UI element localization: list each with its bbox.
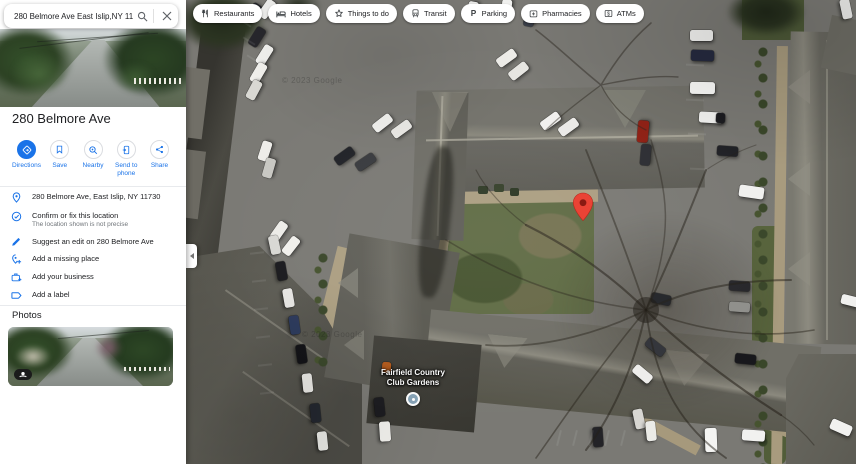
- directions-button[interactable]: Directions: [10, 140, 43, 177]
- satellite-map[interactable]: © 2023 Google © 2023 Google Fairfield Co…: [186, 0, 856, 464]
- chevron-left-icon: [190, 253, 194, 259]
- business-icon: [0, 272, 32, 283]
- send-to-phone-icon: [117, 140, 136, 159]
- chip-things-to-do-label: Things to do: [348, 9, 389, 18]
- restaurant-icon: [201, 9, 210, 18]
- chip-things-to-do[interactable]: Things to do: [326, 4, 397, 23]
- chip-atms-label: ATMs: [617, 9, 636, 18]
- nearby-label: Nearby: [83, 162, 104, 170]
- send-to-phone-label: Send to phone: [110, 162, 143, 177]
- share-label: Share: [151, 162, 168, 170]
- parked-car: [354, 152, 377, 172]
- parking-icon: P: [469, 9, 478, 18]
- sv-fence-right: [134, 78, 182, 83]
- add-business-row[interactable]: Add your business: [0, 272, 186, 283]
- sidebar-collapse-button[interactable]: [186, 244, 197, 268]
- add-label-row[interactable]: Add a label: [0, 290, 186, 301]
- chip-restaurants-label: Restaurants: [214, 9, 254, 18]
- building-top-right-corner: [821, 15, 856, 75]
- send-to-phone-button[interactable]: Send to phone: [110, 140, 143, 177]
- attractions-icon: [334, 9, 344, 19]
- thumb-tree-center: [94, 334, 124, 361]
- thumb-house-left: [15, 345, 51, 369]
- transit-icon: [411, 9, 420, 18]
- map-pin-icon[interactable]: [572, 192, 594, 222]
- chip-restaurants[interactable]: Restaurants: [193, 4, 262, 23]
- ridge-right: [826, 40, 828, 340]
- label-icon: [0, 290, 32, 301]
- photos-heading: Photos: [12, 310, 42, 321]
- chip-transit[interactable]: Transit: [403, 4, 455, 23]
- address-text: 280 Belmore Ave, East Islip, NY 11730: [32, 192, 160, 201]
- parked-car: [390, 119, 413, 139]
- add-missing-place-text: Add a missing place: [32, 254, 99, 263]
- action-bar: Directions Save Nearby Send to phone: [10, 140, 176, 177]
- search-input[interactable]: 280 Belmore Ave East Islip,NY 11730: [4, 12, 133, 21]
- share-icon: [150, 140, 169, 159]
- poi-label[interactable]: Fairfield Country Club Gardens: [358, 368, 468, 388]
- add-missing-place-row[interactable]: Add a missing place: [0, 254, 186, 265]
- chip-pharmacies[interactable]: Pharmacies: [521, 4, 590, 23]
- pencil-icon: [0, 237, 32, 247]
- chip-transit-label: Transit: [424, 9, 447, 18]
- directions-label: Directions: [12, 162, 41, 170]
- hedge-left-walkway: [314, 250, 330, 370]
- bin-1: [478, 186, 488, 194]
- parked-car: [716, 113, 726, 123]
- directions-icon: [17, 140, 36, 159]
- divider-1: [0, 186, 186, 187]
- add-place-icon: [0, 254, 32, 265]
- parked-car: [705, 428, 718, 452]
- parked-car: [275, 261, 288, 281]
- add-business-text: Add your business: [32, 272, 94, 281]
- photos-thumbnail[interactable]: [8, 327, 173, 386]
- save-label: Save: [52, 162, 67, 170]
- parked-car: [691, 50, 714, 62]
- chip-hotels-label: Hotels: [290, 9, 311, 18]
- confirm-location-icon: [0, 211, 32, 222]
- header-streetview-photo[interactable]: [0, 29, 186, 107]
- confirm-location-row[interactable]: Confirm or fix this location The locatio…: [0, 211, 186, 228]
- parking-stripe: [686, 64, 704, 67]
- parked-car: [690, 30, 713, 41]
- place-panel: 280 Belmore Ave East Islip,NY 11730 280 …: [0, 0, 186, 464]
- parked-car: [640, 144, 652, 166]
- sv-tree-left-2: [11, 52, 67, 95]
- parking-stripe: [556, 430, 562, 446]
- atm-icon: $: [604, 9, 613, 18]
- parked-car: [379, 421, 391, 442]
- parked-car: [637, 120, 650, 143]
- parked-car: [742, 429, 766, 442]
- hotel-icon: [276, 9, 286, 19]
- map-watermark-2: © 2023 Google: [302, 330, 362, 339]
- parked-car: [310, 403, 322, 423]
- poi-label-line2: Club Gardens: [358, 378, 468, 388]
- parked-car: [690, 82, 715, 94]
- pharmacy-icon: [529, 9, 538, 18]
- google-maps-app: © 2023 Google © 2023 Google Fairfield Co…: [0, 0, 856, 464]
- poi-label-line1: Fairfield Country: [358, 368, 468, 378]
- parked-car: [495, 48, 518, 68]
- parked-car: [507, 61, 530, 82]
- parked-car: [374, 397, 386, 417]
- parked-car: [729, 301, 751, 312]
- parked-car: [302, 373, 314, 393]
- svg-text:P: P: [470, 9, 476, 18]
- parked-car: [333, 146, 356, 166]
- search-icon[interactable]: [133, 11, 151, 22]
- suggest-edit-row[interactable]: Suggest an edit on 280 Belmore Ave: [0, 237, 186, 247]
- parked-car: [645, 421, 657, 442]
- svg-text:$: $: [607, 11, 610, 17]
- map-watermark-1: © 2023 Google: [282, 76, 342, 85]
- parked-car: [281, 235, 301, 257]
- bin-3: [510, 188, 519, 196]
- save-icon: [50, 140, 69, 159]
- nearby-button[interactable]: Nearby: [77, 140, 110, 177]
- chip-hotels[interactable]: Hotels: [268, 4, 319, 23]
- place-pin-icon: [0, 192, 32, 203]
- bin-2: [494, 184, 504, 192]
- chip-parking-label: Parking: [482, 9, 507, 18]
- confirm-location-text: Confirm or fix this location: [32, 211, 128, 220]
- confirm-location-subtext: The location shown is not precise: [32, 221, 128, 228]
- close-icon[interactable]: [156, 11, 178, 21]
- search-divider: [153, 9, 154, 23]
- parked-car: [245, 79, 263, 101]
- parked-car: [717, 145, 739, 156]
- parked-car: [317, 431, 329, 451]
- parking-stripe: [604, 430, 610, 446]
- divider-2: [0, 305, 186, 306]
- parking-stripe: [572, 430, 578, 446]
- tree-haze-center: [516, 180, 816, 440]
- page-title: 280 Belmore Ave: [12, 111, 111, 126]
- parked-car: [729, 280, 751, 291]
- thumb-fence-right: [124, 367, 170, 371]
- address-row[interactable]: 280 Belmore Ave, East Islip, NY 11730: [0, 192, 186, 203]
- streetview-badge-icon: [14, 369, 32, 380]
- chip-pharmacies-label: Pharmacies: [542, 9, 582, 18]
- parked-car: [735, 353, 757, 365]
- share-button[interactable]: Share: [143, 140, 176, 177]
- suggest-edit-text: Suggest an edit on 280 Belmore Ave: [32, 237, 154, 246]
- chip-parking[interactable]: P Parking: [461, 4, 515, 23]
- nearby-icon: [84, 140, 103, 159]
- save-button[interactable]: Save: [43, 140, 76, 177]
- add-label-text: Add a label: [32, 290, 70, 299]
- category-chips: Restaurants Hotels Things to do Transit …: [193, 4, 644, 23]
- search-card: 280 Belmore Ave East Islip,NY 11730: [4, 4, 178, 28]
- chip-atms[interactable]: $ ATMs: [596, 4, 644, 23]
- poi-icon[interactable]: [406, 392, 420, 406]
